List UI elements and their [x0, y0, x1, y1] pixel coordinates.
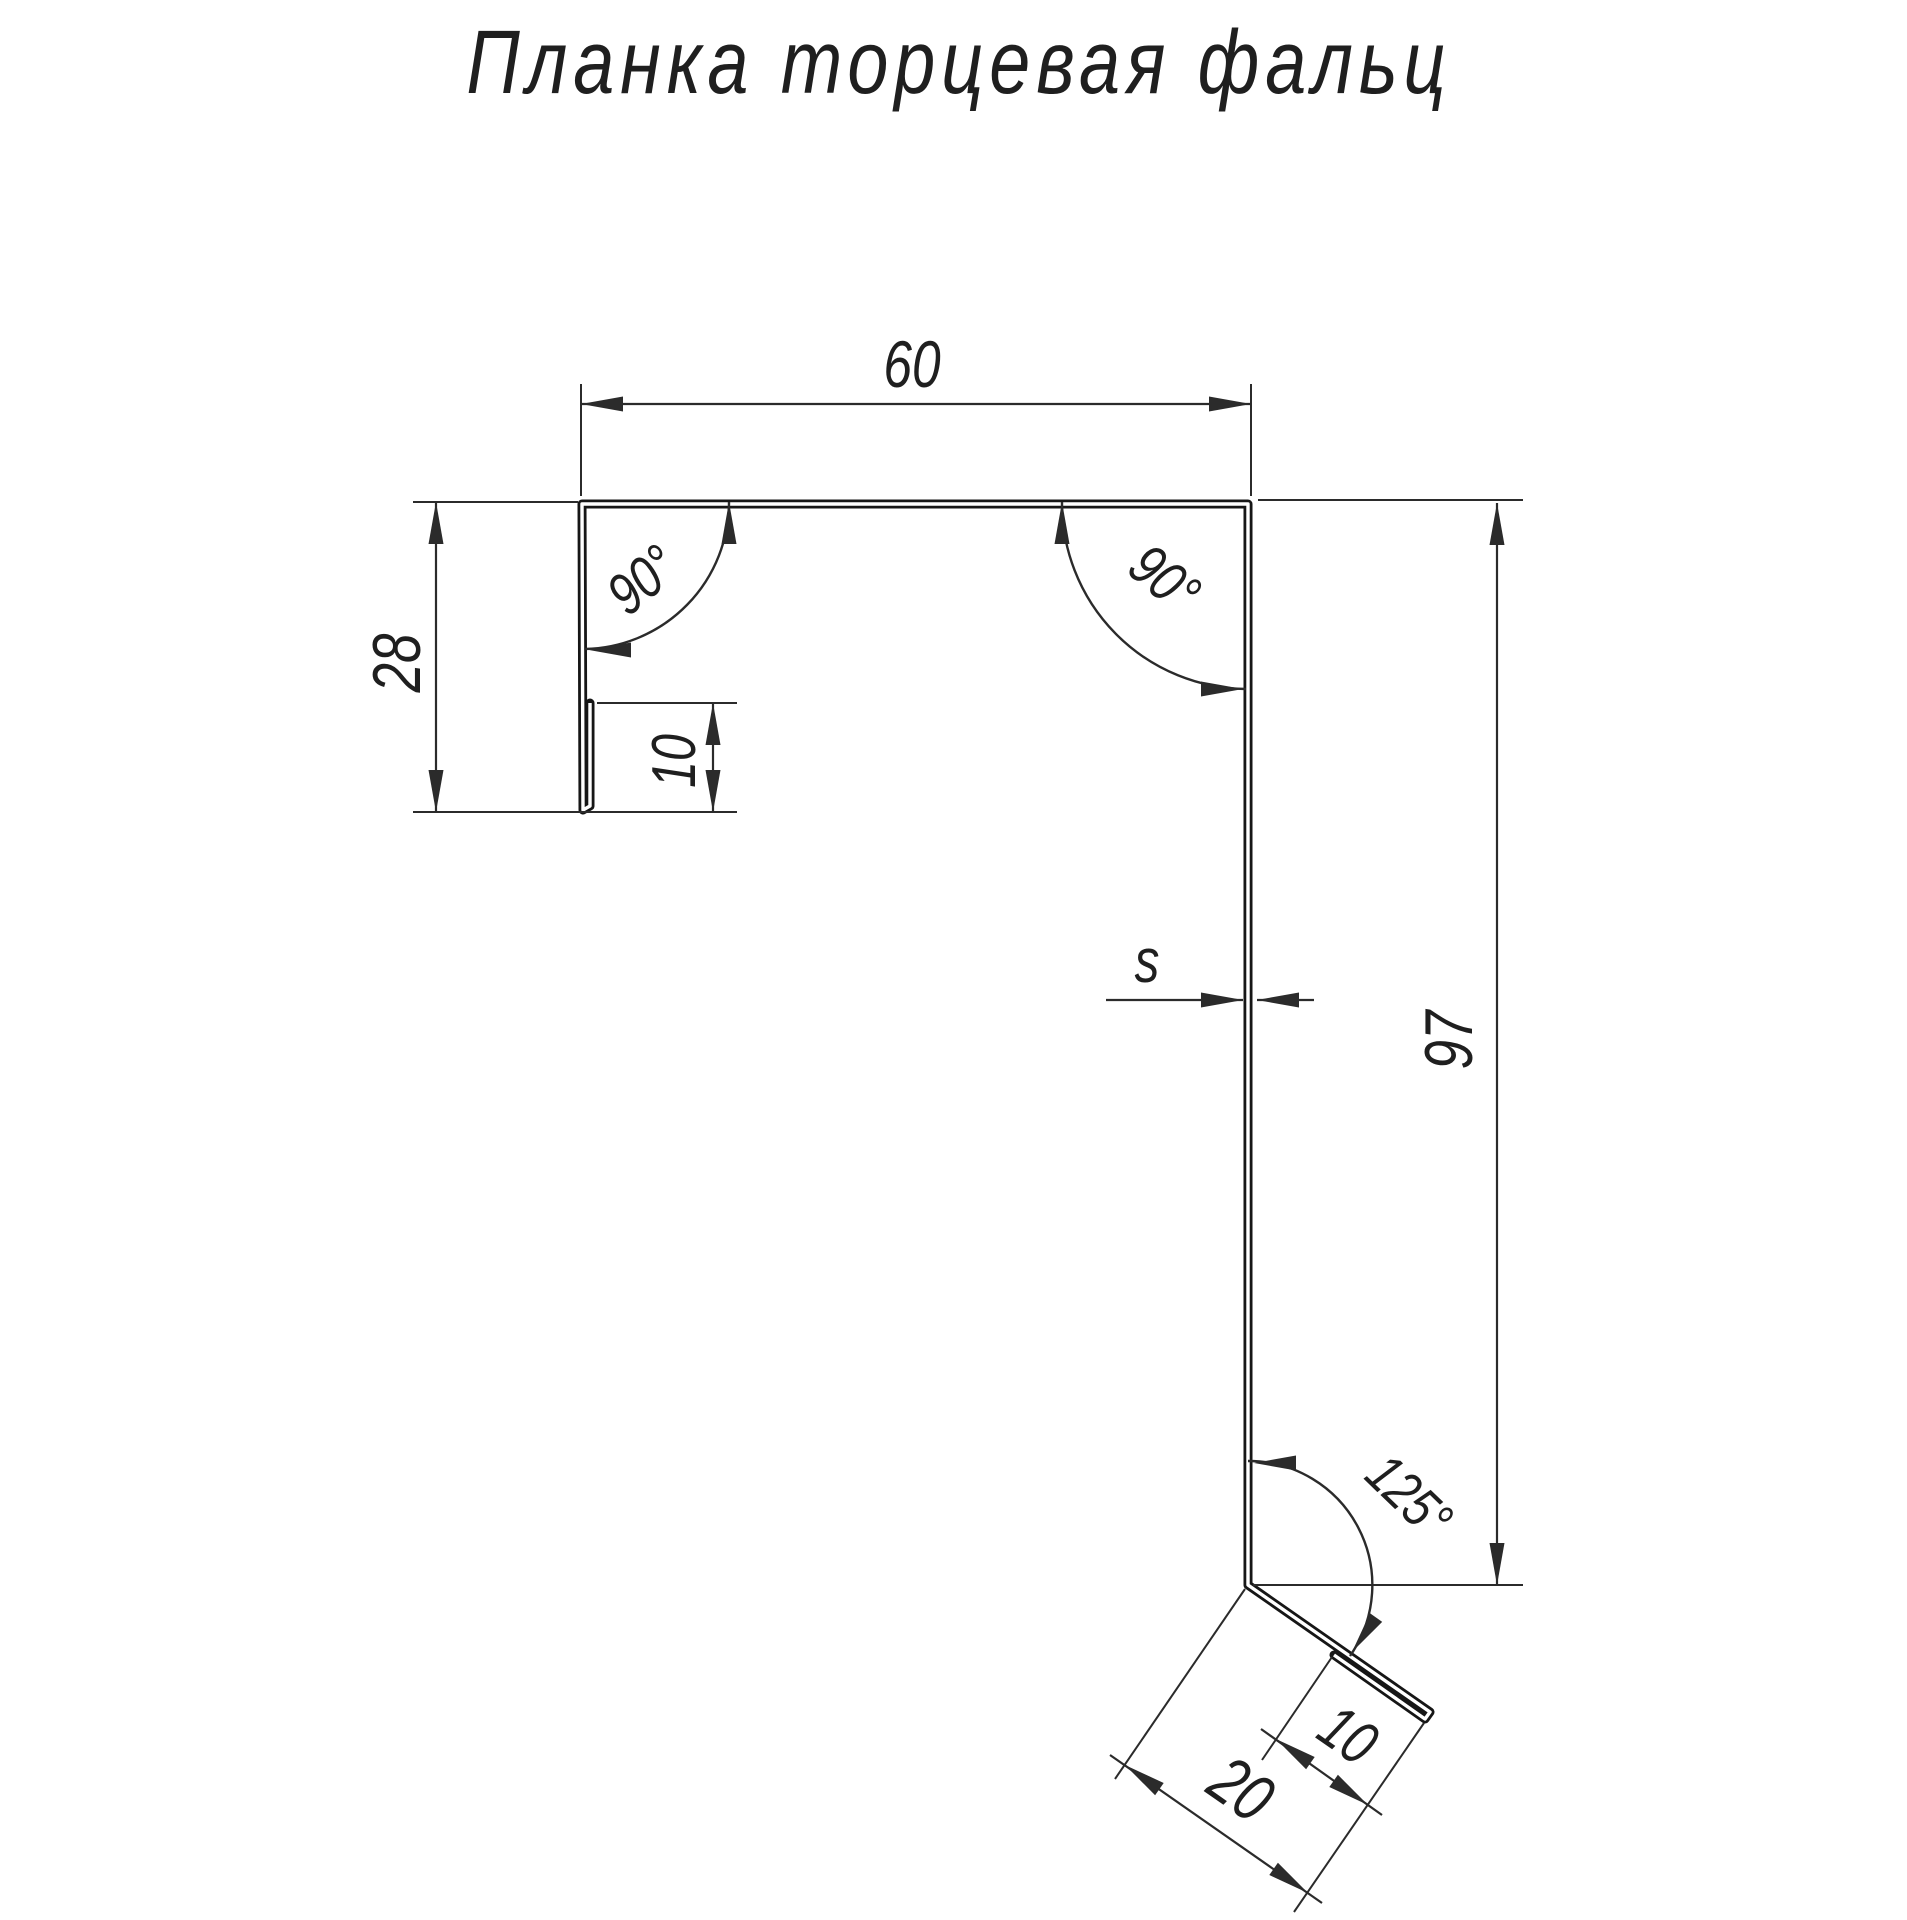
arrowhead: [1269, 1863, 1308, 1893]
dimension-thickness: s: [1106, 926, 1314, 1008]
angle-bottom-bend: 125°: [1248, 1441, 1465, 1656]
arrowhead: [1209, 397, 1251, 412]
profile-metal-core: [582, 504, 1430, 1719]
dimension-left-height-label: 28: [359, 633, 435, 693]
arrowhead: [1201, 682, 1243, 697]
profile-metal-band: [582, 504, 1430, 1719]
dimension-right-height: 97: [1411, 503, 1505, 1585]
arrowhead: [1125, 1765, 1164, 1795]
profile-outline: [582, 504, 1430, 1719]
drawing-page: Планка торцевая фальц 60: [0, 0, 1907, 1920]
dimension-right-height-label: 97: [1411, 1009, 1487, 1070]
arrowhead: [1490, 503, 1505, 545]
arrowhead: [1201, 993, 1243, 1008]
dimension-kick-width-label: 20: [1195, 1740, 1288, 1836]
dimension-top-width-label: 60: [883, 327, 940, 402]
angle-top-right-label: 90°: [1117, 532, 1213, 627]
arrowhead: [1254, 1456, 1296, 1471]
dimension-left-height: 28: [359, 502, 444, 812]
dimension-left-hem-label: 10: [639, 734, 708, 788]
dimension-left-hem: 10: [639, 703, 720, 812]
arrowhead: [1257, 993, 1299, 1008]
dimension-top-width: 60: [581, 327, 1251, 412]
dimension-kick-hem-label: 10: [1306, 1691, 1390, 1779]
extension-line: [1115, 1589, 1245, 1779]
arrowhead: [581, 397, 623, 412]
angle-top-left-label: 90°: [595, 533, 691, 628]
arrowhead: [1329, 1775, 1368, 1805]
angle-top-left: 90°: [585, 502, 737, 658]
dimension-kick-hem: 10: [1261, 1691, 1390, 1815]
angle-top-right: 90°: [1055, 502, 1247, 697]
angle-bottom-label: 125°: [1354, 1441, 1464, 1551]
dimension-kick-width: 20: [1110, 1740, 1322, 1903]
arrowhead: [1490, 1543, 1505, 1585]
dimension-thickness-label: s: [1135, 926, 1160, 996]
drawing-title: Планка торцевая фальц: [466, 13, 1451, 113]
arrowhead: [429, 770, 444, 812]
arrowhead: [429, 502, 444, 544]
technical-drawing: Планка торцевая фальц 60: [0, 0, 1907, 1920]
arrowhead: [589, 643, 631, 658]
